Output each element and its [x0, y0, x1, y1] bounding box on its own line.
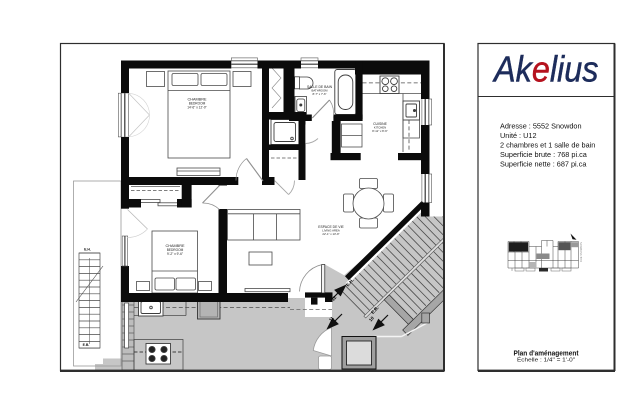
svg-text:RUE SNOWDON: RUE SNOWDON	[579, 242, 583, 262]
svg-text:Akelius: Akelius	[492, 49, 598, 90]
svg-text:14'-6" x 12'-0": 14'-6" x 12'-0"	[187, 106, 207, 110]
svg-text:E.H.: E.H.	[84, 248, 91, 252]
svg-text:8'-7" x 7'-6": 8'-7" x 7'-6"	[312, 92, 326, 96]
svg-text:Unité : U12: Unité : U12	[500, 131, 537, 140]
svg-text:Échelle : 1/4" = 1'-0": Échelle : 1/4" = 1'-0"	[517, 357, 575, 364]
svg-text:8'-11" x 8'-9": 8'-11" x 8'-9"	[372, 129, 387, 133]
svg-text:Adresse : 5552 Snowdon: Adresse : 5552 Snowdon	[500, 121, 582, 130]
svg-text:Plan d'aménagement: Plan d'aménagement	[514, 348, 579, 357]
svg-text:22'-1" x 13'-9": 22'-1" x 13'-9"	[322, 232, 339, 236]
svg-text:2 chambres et 1 salle de bain: 2 chambres et 1 salle de bain	[500, 141, 595, 150]
svg-text:Superficie nette : 687 pi.ca: Superficie nette : 687 pi.ca	[500, 160, 587, 169]
svg-text:Superficie brute : 768 pi.ca: Superficie brute : 768 pi.ca	[500, 150, 588, 159]
svg-text:E.B.: E.B.	[83, 343, 90, 347]
svg-text:9'-2" x 9'-6": 9'-2" x 9'-6"	[167, 252, 183, 256]
